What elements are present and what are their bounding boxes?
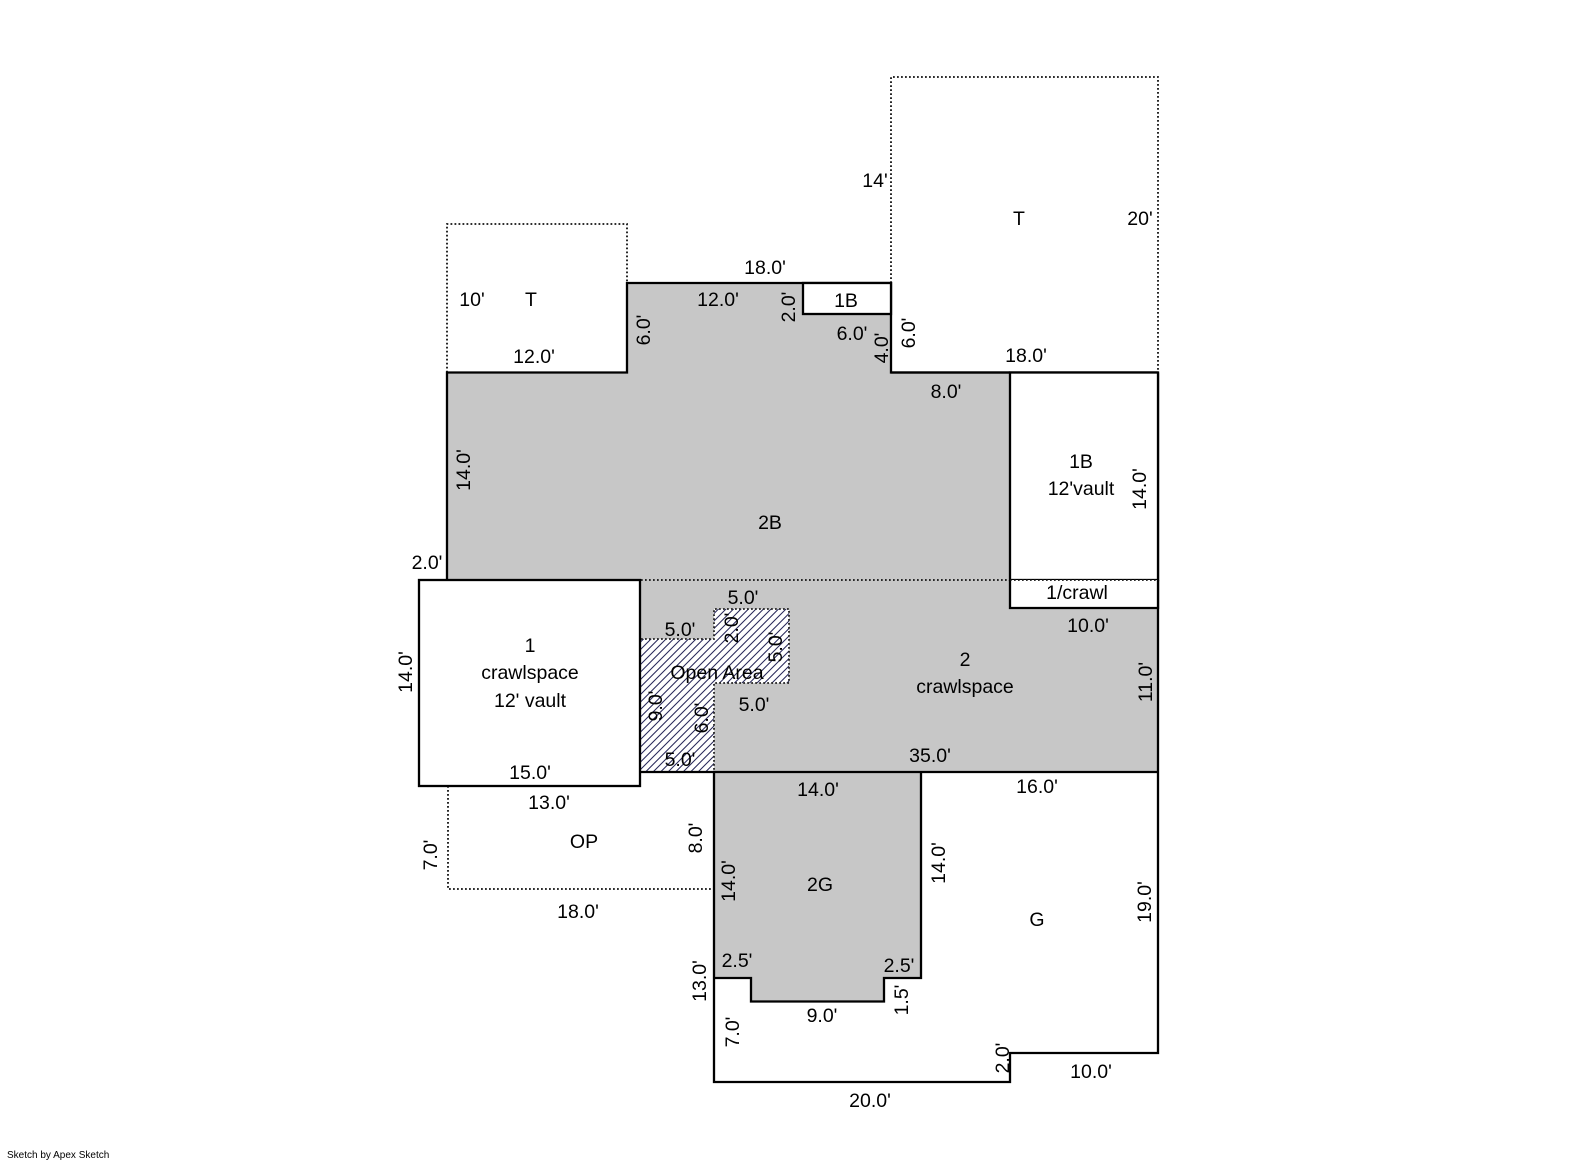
svg-text:T: T xyxy=(525,289,537,311)
svg-text:4.0': 4.0' xyxy=(871,333,893,364)
svg-text:2.0': 2.0' xyxy=(778,292,800,323)
svg-text:14.0': 14.0' xyxy=(1129,468,1151,510)
svg-text:19.0': 19.0' xyxy=(1134,881,1156,923)
svg-text:6.0': 6.0' xyxy=(837,323,868,345)
svg-text:20.0': 20.0' xyxy=(849,1090,891,1112)
svg-text:crawlspace: crawlspace xyxy=(481,662,579,684)
svg-text:5.0': 5.0' xyxy=(728,587,759,609)
svg-text:10': 10' xyxy=(459,289,484,311)
svg-text:18.0': 18.0' xyxy=(744,257,786,279)
svg-text:14.0': 14.0' xyxy=(928,842,950,884)
svg-text:1B: 1B xyxy=(834,290,858,312)
svg-text:9.0': 9.0' xyxy=(645,691,667,722)
svg-text:7.0': 7.0' xyxy=(722,1017,744,1048)
svg-text:12.0': 12.0' xyxy=(513,346,555,368)
svg-text:14.0': 14.0' xyxy=(395,651,417,693)
svg-text:T: T xyxy=(1013,208,1025,230)
svg-text:Sketch by Apex Sketch: Sketch by Apex Sketch xyxy=(7,1150,109,1161)
svg-text:14.0': 14.0' xyxy=(718,860,740,902)
svg-text:2.5': 2.5' xyxy=(884,955,915,977)
svg-text:6.0': 6.0' xyxy=(898,318,920,349)
svg-text:1.5': 1.5' xyxy=(891,985,913,1016)
svg-text:2B: 2B xyxy=(758,512,782,534)
svg-text:2: 2 xyxy=(960,649,971,671)
svg-text:1B: 1B xyxy=(1069,451,1093,473)
svg-text:2G: 2G xyxy=(807,874,833,896)
svg-text:1/crawl: 1/crawl xyxy=(1046,582,1108,604)
svg-text:7.0': 7.0' xyxy=(420,840,442,871)
svg-text:20': 20' xyxy=(1127,208,1152,230)
svg-text:2.0': 2.0' xyxy=(412,552,443,574)
svg-text:11.0': 11.0' xyxy=(1135,662,1157,702)
svg-text:6.0': 6.0' xyxy=(691,703,713,734)
svg-text:1: 1 xyxy=(525,635,536,657)
svg-text:9.0': 9.0' xyxy=(807,1005,838,1027)
svg-text:14': 14' xyxy=(862,170,887,192)
svg-text:5.0': 5.0' xyxy=(739,694,770,716)
svg-text:18.0': 18.0' xyxy=(1005,345,1047,367)
svg-text:crawlspace: crawlspace xyxy=(916,676,1014,698)
svg-text:12.0': 12.0' xyxy=(697,289,739,311)
svg-text:35.0': 35.0' xyxy=(909,745,951,767)
svg-text:10.0': 10.0' xyxy=(1067,615,1109,637)
svg-text:12' vault: 12' vault xyxy=(494,690,567,712)
svg-text:13.0': 13.0' xyxy=(689,960,711,1002)
svg-text:13.0': 13.0' xyxy=(528,792,570,814)
svg-text:Open Area: Open Area xyxy=(670,662,763,684)
svg-text:5.0': 5.0' xyxy=(665,619,696,641)
svg-text:2.5': 2.5' xyxy=(722,950,753,972)
svg-text:OP: OP xyxy=(570,831,598,853)
svg-text:15.0': 15.0' xyxy=(509,762,551,784)
svg-text:8.0': 8.0' xyxy=(685,823,707,854)
svg-text:10.0': 10.0' xyxy=(1070,1061,1112,1083)
svg-text:2.0': 2.0' xyxy=(992,1043,1014,1074)
svg-text:14.0': 14.0' xyxy=(797,779,839,801)
svg-text:5.0': 5.0' xyxy=(665,749,696,771)
svg-text:2.0': 2.0' xyxy=(721,613,743,644)
svg-text:14.0': 14.0' xyxy=(453,449,475,491)
svg-text:6.0': 6.0' xyxy=(633,315,655,346)
svg-text:G: G xyxy=(1029,909,1044,931)
svg-text:8.0': 8.0' xyxy=(931,381,962,403)
svg-text:5.0': 5.0' xyxy=(765,632,787,663)
svg-text:16.0': 16.0' xyxy=(1016,776,1058,798)
svg-text:18.0': 18.0' xyxy=(557,901,599,923)
svg-text:12'vault: 12'vault xyxy=(1048,478,1115,500)
